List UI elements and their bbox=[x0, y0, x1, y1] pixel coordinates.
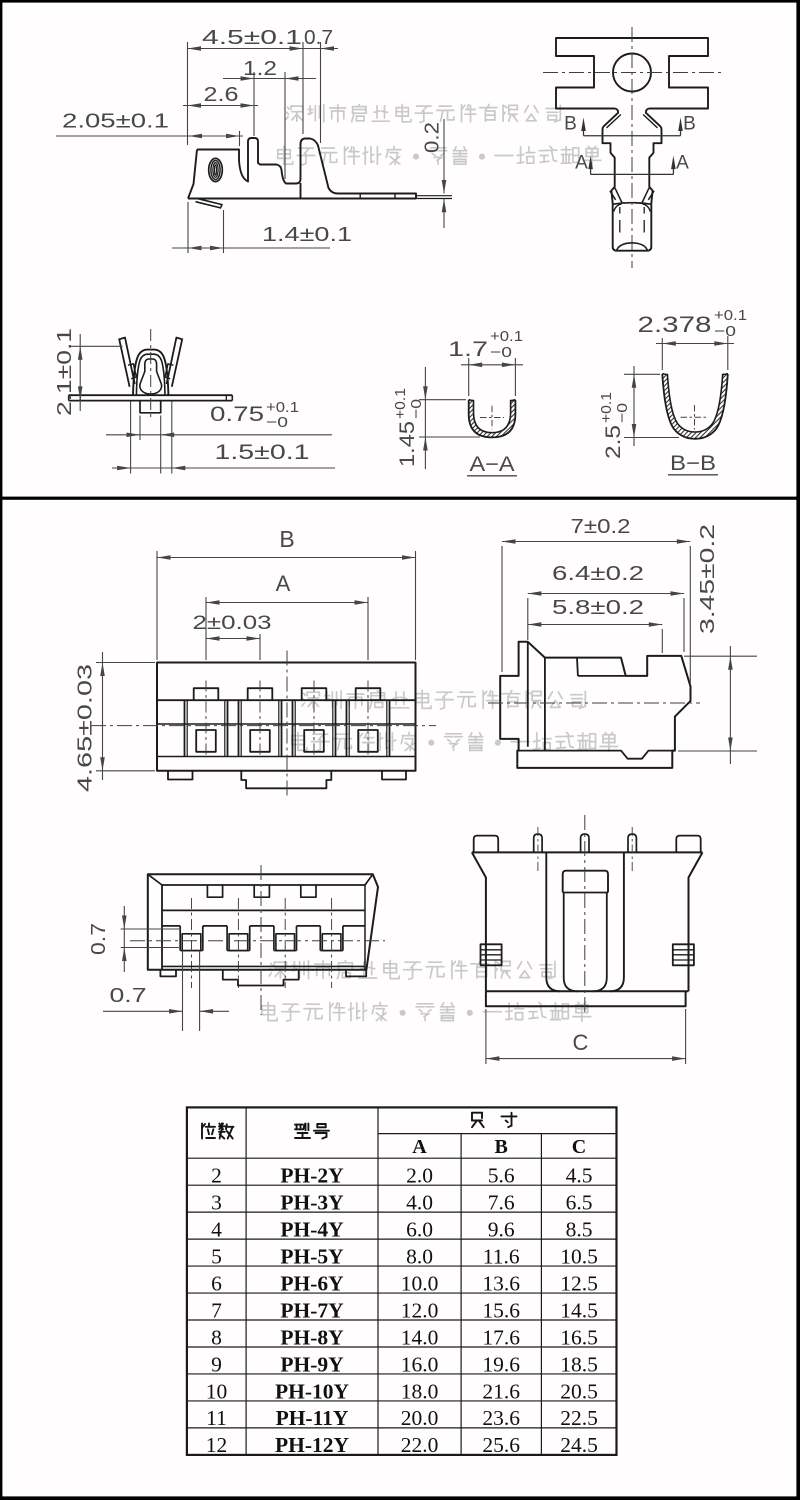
svg-text:11.6: 11.6 bbox=[483, 1244, 520, 1268]
svg-text:0.7: 0.7 bbox=[110, 985, 147, 1007]
svg-text:A: A bbox=[676, 153, 689, 174]
svg-text:+0.1: +0.1 bbox=[490, 328, 523, 345]
svg-text:PH-11Y: PH-11Y bbox=[276, 1406, 349, 1430]
svg-text:0.7: 0.7 bbox=[88, 923, 110, 955]
svg-text:C: C bbox=[573, 1030, 589, 1055]
svg-text:2.6: 2.6 bbox=[204, 84, 239, 106]
svg-text:8.0: 8.0 bbox=[406, 1244, 433, 1268]
svg-text:22.5: 22.5 bbox=[560, 1406, 598, 1430]
svg-text:PH-10Y: PH-10Y bbox=[275, 1379, 350, 1403]
svg-text:1.7: 1.7 bbox=[448, 338, 488, 361]
svg-text:18.0: 18.0 bbox=[401, 1379, 439, 1403]
svg-text:PH-8Y: PH-8Y bbox=[280, 1325, 344, 1349]
svg-text:2.378: 2.378 bbox=[638, 312, 712, 337]
svg-text:8.5: 8.5 bbox=[566, 1217, 593, 1241]
svg-text:6.0: 6.0 bbox=[406, 1217, 433, 1241]
svg-text:21.6: 21.6 bbox=[482, 1379, 520, 1403]
svg-text:PH-2Y: PH-2Y bbox=[280, 1164, 344, 1188]
svg-text:PH-9Y: PH-9Y bbox=[280, 1352, 344, 1376]
svg-text:PH-3Y: PH-3Y bbox=[280, 1190, 344, 1214]
svg-text:1.45: 1.45 bbox=[396, 421, 419, 467]
svg-text:−0: −0 bbox=[714, 323, 736, 340]
svg-text:4.5: 4.5 bbox=[566, 1164, 593, 1188]
svg-text:19.6: 19.6 bbox=[482, 1352, 520, 1376]
svg-text:24.5: 24.5 bbox=[560, 1433, 598, 1457]
svg-text:3: 3 bbox=[211, 1190, 222, 1214]
svg-text:2±0.03: 2±0.03 bbox=[193, 612, 272, 634]
svg-text:7±0.2: 7±0.2 bbox=[571, 516, 631, 538]
svg-text:B: B bbox=[564, 114, 577, 135]
svg-text:2: 2 bbox=[211, 1164, 222, 1188]
svg-text:4: 4 bbox=[211, 1217, 222, 1241]
svg-text:A: A bbox=[412, 1136, 427, 1158]
svg-text:14.5: 14.5 bbox=[560, 1298, 598, 1322]
svg-text:9: 9 bbox=[211, 1352, 222, 1376]
svg-text:11: 11 bbox=[206, 1406, 227, 1430]
svg-text:+0.1: +0.1 bbox=[598, 392, 615, 423]
svg-text:13.6: 13.6 bbox=[482, 1271, 520, 1295]
svg-text:6.4±0.2: 6.4±0.2 bbox=[552, 563, 644, 585]
svg-text:A: A bbox=[575, 153, 588, 174]
svg-text:3.45±0.2: 3.45±0.2 bbox=[697, 524, 719, 634]
svg-text:−0: −0 bbox=[490, 344, 512, 361]
svg-text:B: B bbox=[495, 1136, 508, 1158]
svg-text:6.5: 6.5 bbox=[566, 1190, 593, 1214]
svg-text:18.5: 18.5 bbox=[560, 1352, 598, 1376]
svg-text:B: B bbox=[683, 114, 696, 135]
svg-text:A−A: A−A bbox=[470, 453, 515, 476]
svg-text:12: 12 bbox=[206, 1433, 228, 1457]
svg-text:2.1±0.1: 2.1±0.1 bbox=[54, 328, 76, 416]
svg-text:20.5: 20.5 bbox=[560, 1379, 598, 1403]
svg-text:12.0: 12.0 bbox=[401, 1298, 439, 1322]
svg-text:PH-4Y: PH-4Y bbox=[280, 1217, 344, 1241]
svg-text:17.6: 17.6 bbox=[482, 1325, 520, 1349]
svg-text:5.6: 5.6 bbox=[488, 1164, 515, 1188]
svg-text:4.65±0.03: 4.65±0.03 bbox=[75, 664, 97, 792]
svg-text:−0: −0 bbox=[266, 414, 288, 431]
svg-text:0.2: 0.2 bbox=[422, 122, 444, 153]
svg-text:−0: −0 bbox=[408, 399, 425, 419]
svg-text:7: 7 bbox=[211, 1298, 222, 1322]
svg-text:−0: −0 bbox=[614, 403, 631, 423]
svg-text:10.5: 10.5 bbox=[560, 1244, 598, 1268]
svg-text:PH-5Y: PH-5Y bbox=[280, 1244, 344, 1268]
svg-text:2.5: 2.5 bbox=[602, 425, 625, 459]
svg-text:22.0: 22.0 bbox=[401, 1433, 439, 1457]
svg-text:23.6: 23.6 bbox=[482, 1406, 520, 1430]
svg-text:4.0: 4.0 bbox=[406, 1190, 433, 1214]
svg-text:20.0: 20.0 bbox=[401, 1406, 439, 1430]
svg-text:PH-6Y: PH-6Y bbox=[280, 1271, 344, 1295]
svg-text:2.05±0.1: 2.05±0.1 bbox=[62, 111, 169, 133]
svg-text:PH-12Y: PH-12Y bbox=[275, 1433, 350, 1457]
svg-text:0.7: 0.7 bbox=[304, 27, 333, 49]
svg-text:B−B: B−B bbox=[670, 452, 716, 475]
svg-text:1.5±0.1: 1.5±0.1 bbox=[215, 441, 310, 464]
svg-text:16.5: 16.5 bbox=[560, 1325, 598, 1349]
svg-text:9.6: 9.6 bbox=[488, 1217, 515, 1241]
svg-text:7.6: 7.6 bbox=[488, 1190, 515, 1214]
svg-text:15.6: 15.6 bbox=[482, 1298, 520, 1322]
svg-text:4.5±0.1: 4.5±0.1 bbox=[202, 27, 302, 49]
svg-text:2.0: 2.0 bbox=[406, 1164, 433, 1188]
svg-text:C: C bbox=[572, 1136, 586, 1158]
svg-text:A: A bbox=[276, 571, 291, 596]
svg-text:6: 6 bbox=[211, 1271, 222, 1295]
svg-text:14.0: 14.0 bbox=[401, 1325, 439, 1349]
svg-text:16.0: 16.0 bbox=[401, 1352, 439, 1376]
svg-text:B: B bbox=[279, 526, 294, 552]
svg-text:+0.1: +0.1 bbox=[714, 307, 747, 324]
svg-text:10.0: 10.0 bbox=[401, 1271, 439, 1295]
svg-text:10: 10 bbox=[206, 1379, 228, 1403]
svg-text:8: 8 bbox=[211, 1325, 222, 1349]
svg-text:1.2: 1.2 bbox=[243, 58, 277, 80]
svg-text:1.4±0.1: 1.4±0.1 bbox=[262, 224, 352, 246]
svg-text:0.75: 0.75 bbox=[210, 403, 264, 426]
svg-text:5.8±0.2: 5.8±0.2 bbox=[552, 597, 644, 619]
svg-text:PH-7Y: PH-7Y bbox=[280, 1298, 344, 1322]
svg-text:+0.1: +0.1 bbox=[392, 388, 409, 419]
svg-text:25.6: 25.6 bbox=[482, 1433, 520, 1457]
svg-text:12.5: 12.5 bbox=[560, 1271, 598, 1295]
svg-text:5: 5 bbox=[211, 1244, 222, 1268]
